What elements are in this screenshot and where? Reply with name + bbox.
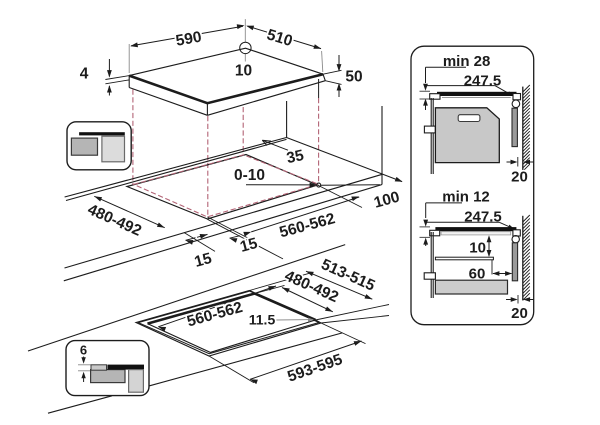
svg-text:593-595: 593-595 — [285, 351, 345, 386]
svg-text:0-10: 0-10 — [234, 167, 265, 184]
svg-text:11.5: 11.5 — [249, 311, 276, 327]
svg-text:480-492: 480-492 — [85, 201, 144, 240]
svg-text:560-562: 560-562 — [278, 210, 337, 241]
svg-text:10: 10 — [235, 62, 252, 79]
svg-text:50: 50 — [345, 68, 362, 85]
svg-text:15: 15 — [238, 235, 259, 256]
svg-text:15: 15 — [193, 250, 214, 271]
svg-text:10: 10 — [469, 240, 486, 257]
svg-text:100: 100 — [372, 189, 401, 212]
svg-text:20: 20 — [511, 305, 528, 322]
svg-text:6: 6 — [80, 343, 87, 358]
svg-text:510: 510 — [265, 26, 295, 50]
svg-text:590: 590 — [175, 29, 203, 50]
svg-text:247.5: 247.5 — [464, 73, 502, 90]
svg-text:4: 4 — [80, 65, 89, 82]
svg-text:35: 35 — [285, 147, 306, 167]
svg-text:247.5: 247.5 — [464, 208, 502, 225]
svg-text:20: 20 — [511, 168, 528, 185]
